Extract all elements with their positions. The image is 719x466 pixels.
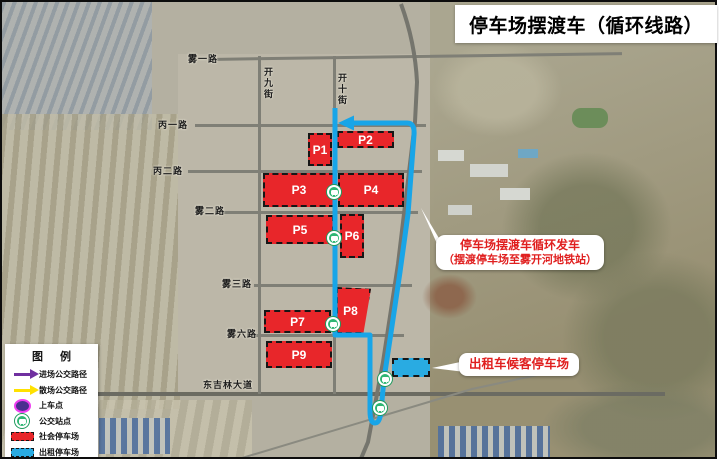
background-blue-roof-building [518, 149, 538, 158]
bus-glyph [377, 406, 384, 411]
bus-glyph [331, 236, 338, 241]
road-main-diagonal [360, 4, 417, 459]
parking-lot-p3: P3 [263, 173, 335, 207]
legend-label: 散场公交路径 [39, 385, 87, 396]
parking-lot-p8: P8 [336, 287, 371, 334]
parking-lot-label: P2 [358, 133, 373, 147]
legend-row-enter-route: 进场公交路径 [5, 367, 98, 383]
bus-glyph [19, 419, 26, 424]
bus-stop-icon [15, 414, 29, 428]
road-label-wuyi-lu: 雾一路 [188, 52, 218, 65]
parking-lot-label: P4 [364, 183, 379, 197]
map-canvas: 雾一路 开九街 开十街 丙一路 丙二路 雾二路 雾三路 雾六路 东吉林大道 P1… [0, 0, 717, 459]
bus-stop-icon [378, 372, 392, 386]
parking-lot-label: P5 [293, 223, 308, 237]
background-sports-field [572, 108, 608, 128]
annotation-line: 出租车候客停车场 [469, 357, 569, 371]
legend-row-public-parking: 社会停车场 [5, 429, 98, 445]
background-hill-blob-1 [502, 152, 672, 302]
background-east-terrain [430, 2, 717, 459]
legend-label: 上车点 [39, 400, 63, 411]
parking-lot-label: P6 [345, 229, 360, 243]
road-label-wuer-lu: 雾二路 [195, 204, 225, 217]
road-kaijiu-jie [258, 56, 261, 394]
legend-row-bus-stop: 公交站点 [5, 414, 98, 430]
parking-lot-label: P3 [292, 183, 307, 197]
blue-parking-swatch-icon [11, 448, 34, 457]
background-campus-building-4 [448, 205, 472, 215]
yellow-arrow-icon [14, 389, 31, 392]
background-campus-building-3 [500, 188, 530, 200]
screenshot: 雾一路 开九街 开十街 丙一路 丙二路 雾二路 雾三路 雾六路 东吉林大道 P1… [0, 0, 719, 466]
annotation-shuttle-loop: 停车场摆渡车循环发车 （摆渡停车场至雾开河地铁站） [436, 235, 604, 270]
parking-lot-label: P8 [343, 304, 358, 318]
road-label-kaishi-jie: 开十街 [336, 73, 349, 106]
background-village-red-roofs [422, 274, 477, 319]
bus-stop-icon [327, 231, 341, 245]
parking-lot-p2: P2 [337, 131, 394, 148]
road-secondary-diagonal [242, 373, 547, 458]
legend-label: 出租停车场 [39, 447, 79, 458]
parking-lot-p4: P4 [338, 173, 404, 207]
parking-lot-p9: P9 [266, 341, 332, 368]
legend-label: 公交站点 [39, 416, 71, 427]
bus-glyph [382, 377, 389, 382]
parking-lot-label: P9 [292, 348, 307, 362]
legend-panel: 图 例 进场公交路径 散场公交路径 上车点 公交站点 社会停车场 [5, 344, 98, 457]
parking-lot-label: P7 [290, 315, 305, 329]
purple-arrow-icon [14, 373, 31, 376]
bus-stop-icon [373, 401, 387, 415]
parking-lot-p7: P7 [264, 310, 331, 333]
parking-lot-p5: P5 [266, 215, 334, 244]
legend-row-exit-route: 散场公交路径 [5, 383, 98, 399]
road-wuyi-lu [217, 52, 622, 61]
road-label-wuliu-lu: 雾六路 [227, 327, 257, 340]
annotation-taxi-waiting: 出租车候客停车场 [459, 353, 579, 376]
road-wuliu-lu [254, 334, 404, 337]
road-wuer-lu [223, 211, 418, 214]
background-hill-blob-2 [562, 252, 717, 422]
parking-lot-p6: P6 [340, 214, 364, 258]
legend-label: 进场公交路径 [39, 369, 87, 380]
bus-glyph [330, 322, 337, 327]
title-box: 停车场摆渡车（循环线路） [455, 5, 717, 43]
annotation-line: 停车场摆渡车循环发车 [443, 238, 597, 253]
bus-stop-icon [327, 185, 341, 199]
legend-label: 社会停车场 [39, 431, 79, 442]
background-greenhouse-fields [2, 2, 152, 130]
road-label-binger-lu: 丙二路 [153, 164, 183, 177]
page-title: 停车场摆渡车（循环线路） [469, 11, 703, 38]
background-campus-building-1 [438, 150, 464, 161]
road-label-dongjilin-dadao: 东吉林大道 [203, 378, 253, 391]
bus-glyph [331, 190, 338, 195]
road-dongjilin-dadao [87, 392, 665, 396]
red-parking-swatch-icon [11, 432, 34, 441]
bus-stop-icon [326, 317, 340, 331]
taxi-parking-lot [392, 358, 430, 377]
legend-row-taxi-parking: 出租停车场 [5, 445, 98, 460]
road-bingyi-lu [195, 124, 426, 127]
road-label-wusan-lu: 雾三路 [222, 277, 252, 290]
background-campus-building-2 [470, 164, 508, 177]
boarding-point-icon [14, 399, 31, 413]
route-direction-arrow-icon [338, 116, 354, 131]
background-warehouse-cluster-east [438, 426, 550, 457]
road-label-kaijiu-jie: 开九街 [262, 67, 275, 100]
parking-lot-p1: P1 [308, 133, 332, 166]
legend-row-boarding-point: 上车点 [5, 398, 98, 414]
annotation-line: （摆渡停车场至雾开河地铁站） [443, 253, 597, 267]
road-label-bingyi-lu: 丙一路 [158, 118, 188, 131]
legend-title: 图 例 [5, 348, 98, 364]
parking-lot-label: P1 [313, 143, 328, 157]
